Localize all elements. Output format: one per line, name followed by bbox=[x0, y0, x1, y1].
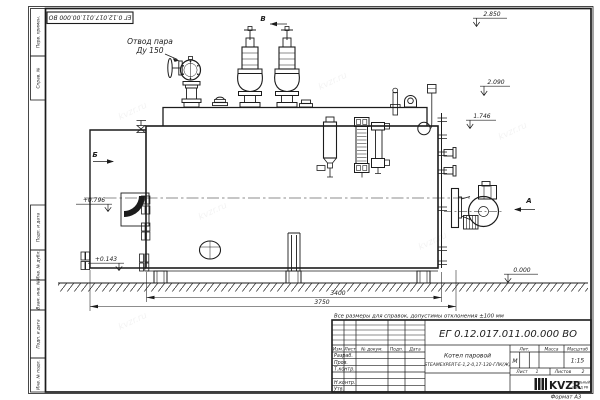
watermark: kvzr.ru kvzr.ru kvzr.ru kvzr.ru kvzr.ru … bbox=[117, 71, 529, 333]
gauge-glass-tube bbox=[372, 123, 390, 174]
svg-text:Подп.: Подп. bbox=[390, 347, 403, 353]
product-model: STEAMEXPERT-Е-1,2-0,17-130-ГЛК(Ж) bbox=[424, 362, 511, 368]
stamp-perv-primen: Перв. примен. bbox=[36, 16, 42, 48]
lifting-lug bbox=[405, 96, 417, 107]
svg-text:Масса: Масса bbox=[545, 347, 559, 353]
svg-text:Н.контр.: Н.контр. bbox=[334, 380, 355, 386]
elevation-0000: 0.000 bbox=[504, 267, 538, 283]
boiler-drawing: kvzr.ru kvzr.ru kvzr.ru kvzr.ru kvzr.ru … bbox=[0, 0, 600, 400]
titleblock-doc-number: ЕГ 0.12.017.011.00.000 ВО bbox=[439, 329, 577, 340]
dim-3750: 3750 bbox=[90, 299, 456, 308]
burner bbox=[444, 182, 504, 230]
svg-text:Масштаб: Масштаб bbox=[567, 347, 588, 353]
view-label-b: Б bbox=[92, 151, 97, 159]
svg-text:Пров.: Пров. bbox=[334, 360, 348, 366]
lit-value: М bbox=[512, 358, 518, 365]
gauge-glass-ladder bbox=[355, 118, 370, 178]
stamp-vzam-inv: Взам. инв. № bbox=[36, 280, 42, 310]
view-arrow-v bbox=[270, 22, 277, 26]
vent-pipe bbox=[393, 93, 398, 116]
front-section bbox=[81, 121, 150, 272]
stamp-podp-data2: Подп. и дата bbox=[36, 319, 42, 349]
view-label-a: А bbox=[525, 197, 531, 205]
view-arrow-b bbox=[107, 159, 114, 163]
svg-text:Лист: Лист bbox=[343, 347, 356, 353]
signature-rows: Разраб. Пров. Т.контр. Н.контр. Утв. bbox=[334, 353, 355, 392]
svg-text:2.850: 2.850 bbox=[483, 11, 500, 18]
stamp-sprav-no: Справ. № bbox=[36, 67, 42, 88]
support-feet bbox=[154, 271, 430, 283]
scale-value: 1:15 bbox=[571, 358, 585, 365]
top-doc-stamp: ЕГ 0.12.017.011.00.000 ВО bbox=[47, 12, 133, 24]
elevation-0796: +0.796 bbox=[76, 197, 112, 212]
svg-text:3400: 3400 bbox=[330, 290, 345, 297]
drawing-sheet: kvzr.ru kvzr.ru kvzr.ru kvzr.ru kvzr.ru … bbox=[0, 0, 600, 400]
svg-text:Лист: Лист bbox=[515, 369, 528, 375]
boiler-shell bbox=[84, 108, 470, 284]
svg-text:kvzr.ru: kvzr.ru bbox=[197, 201, 229, 223]
logo-sub-2: ЗАВОД РФ bbox=[572, 386, 589, 390]
svg-text:1: 1 bbox=[536, 369, 539, 375]
svg-text:2.090: 2.090 bbox=[487, 79, 504, 86]
svg-text:kvzr.ru: kvzr.ru bbox=[117, 101, 149, 123]
elevation-2850: 2.850 bbox=[473, 11, 507, 27]
steam-outlet-callout: Отвод пара Ду 150 bbox=[127, 37, 179, 62]
steam-outlet-label-2: Ду 150 bbox=[136, 46, 164, 55]
logo-sub-1: КОТЕЛЬНЫЙ bbox=[570, 380, 591, 385]
ground bbox=[58, 283, 588, 292]
stamp-podp-data1: Подп. и дата bbox=[36, 213, 42, 243]
stamp-inv-dubl: Инв. № дубл. bbox=[36, 250, 42, 279]
safety-valve-2 bbox=[275, 27, 300, 108]
kvzr-logo: KVZR КОТЕЛЬНЫЙ ЗАВОД РФ bbox=[535, 378, 591, 392]
svg-text:+0.143: +0.143 bbox=[95, 256, 117, 263]
handwheel bbox=[168, 59, 172, 78]
elevation-1746: 1.746 bbox=[466, 113, 496, 129]
svg-text:3750: 3750 bbox=[314, 299, 329, 306]
steam-outlet-label-1: Отвод пара bbox=[127, 37, 173, 46]
svg-text:2: 2 bbox=[582, 369, 585, 375]
svg-text:Т.контр.: Т.контр. bbox=[334, 367, 355, 373]
svg-text:kvzr.ru: kvzr.ru bbox=[117, 311, 149, 333]
hand-hole bbox=[200, 241, 221, 259]
steam-outlet-valve bbox=[168, 57, 201, 108]
top-nozzles bbox=[213, 85, 437, 135]
svg-text:Разраб.: Разраб. bbox=[334, 353, 353, 359]
title-block: ЕГ 0.12.017.011.00.000 ВО Котел паровой … bbox=[332, 320, 591, 392]
view-arrow-a bbox=[514, 207, 521, 211]
elevation-2090: 2.090 bbox=[480, 79, 510, 96]
svg-text:0.000: 0.000 bbox=[513, 267, 530, 274]
reference-note: Все размеры для справок, допустимы откло… bbox=[334, 314, 504, 320]
safety-valve-1 bbox=[238, 27, 263, 108]
side-stamp-column: Перв. примен. Справ. № Подп. и дата Инв.… bbox=[31, 9, 46, 393]
svg-text:1.746: 1.746 bbox=[473, 113, 490, 120]
format-label: Формат А3 bbox=[551, 395, 582, 400]
stamp-inv-podl: Инв. № подл. bbox=[36, 360, 42, 390]
svg-text:Изм.: Изм. bbox=[333, 347, 343, 353]
svg-text:Утв.: Утв. bbox=[334, 386, 344, 392]
svg-text:kvzr.ru: kvzr.ru bbox=[317, 71, 349, 93]
svg-text:+0.796: +0.796 bbox=[83, 197, 105, 204]
top-doc-number: ЕГ 0.12.017.011.00.000 ВО bbox=[48, 14, 131, 21]
svg-text:№ докум.: № докум. bbox=[360, 347, 383, 353]
view-label-v: В bbox=[260, 15, 265, 23]
svg-text:Лит.: Лит. bbox=[518, 347, 529, 353]
svg-text:Листов: Листов bbox=[554, 369, 572, 375]
product-name: Котел паровой bbox=[444, 353, 491, 360]
svg-text:kvzr.ru: kvzr.ru bbox=[417, 231, 449, 253]
downcomer-column bbox=[288, 233, 300, 271]
svg-text:kvzr.ru: kvzr.ru bbox=[497, 121, 529, 143]
front-left-stubs bbox=[81, 252, 90, 270]
svg-text:Дата: Дата bbox=[408, 347, 421, 353]
